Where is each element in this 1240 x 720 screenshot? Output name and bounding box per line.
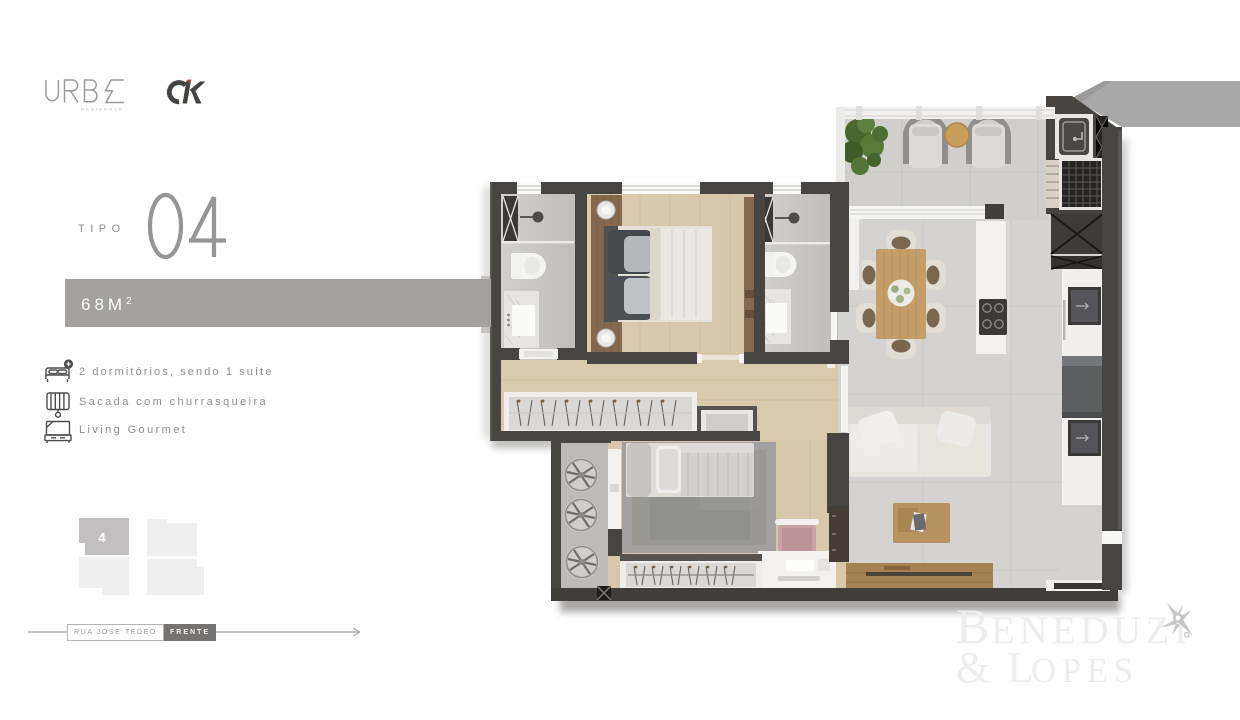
svg-text:4: 4 <box>98 530 106 545</box>
svg-text:RESIDENCE: RESIDENCE <box>81 107 124 112</box>
svg-text:& L: & L <box>956 643 1037 692</box>
svg-text:OPES: OPES <box>1031 651 1139 690</box>
